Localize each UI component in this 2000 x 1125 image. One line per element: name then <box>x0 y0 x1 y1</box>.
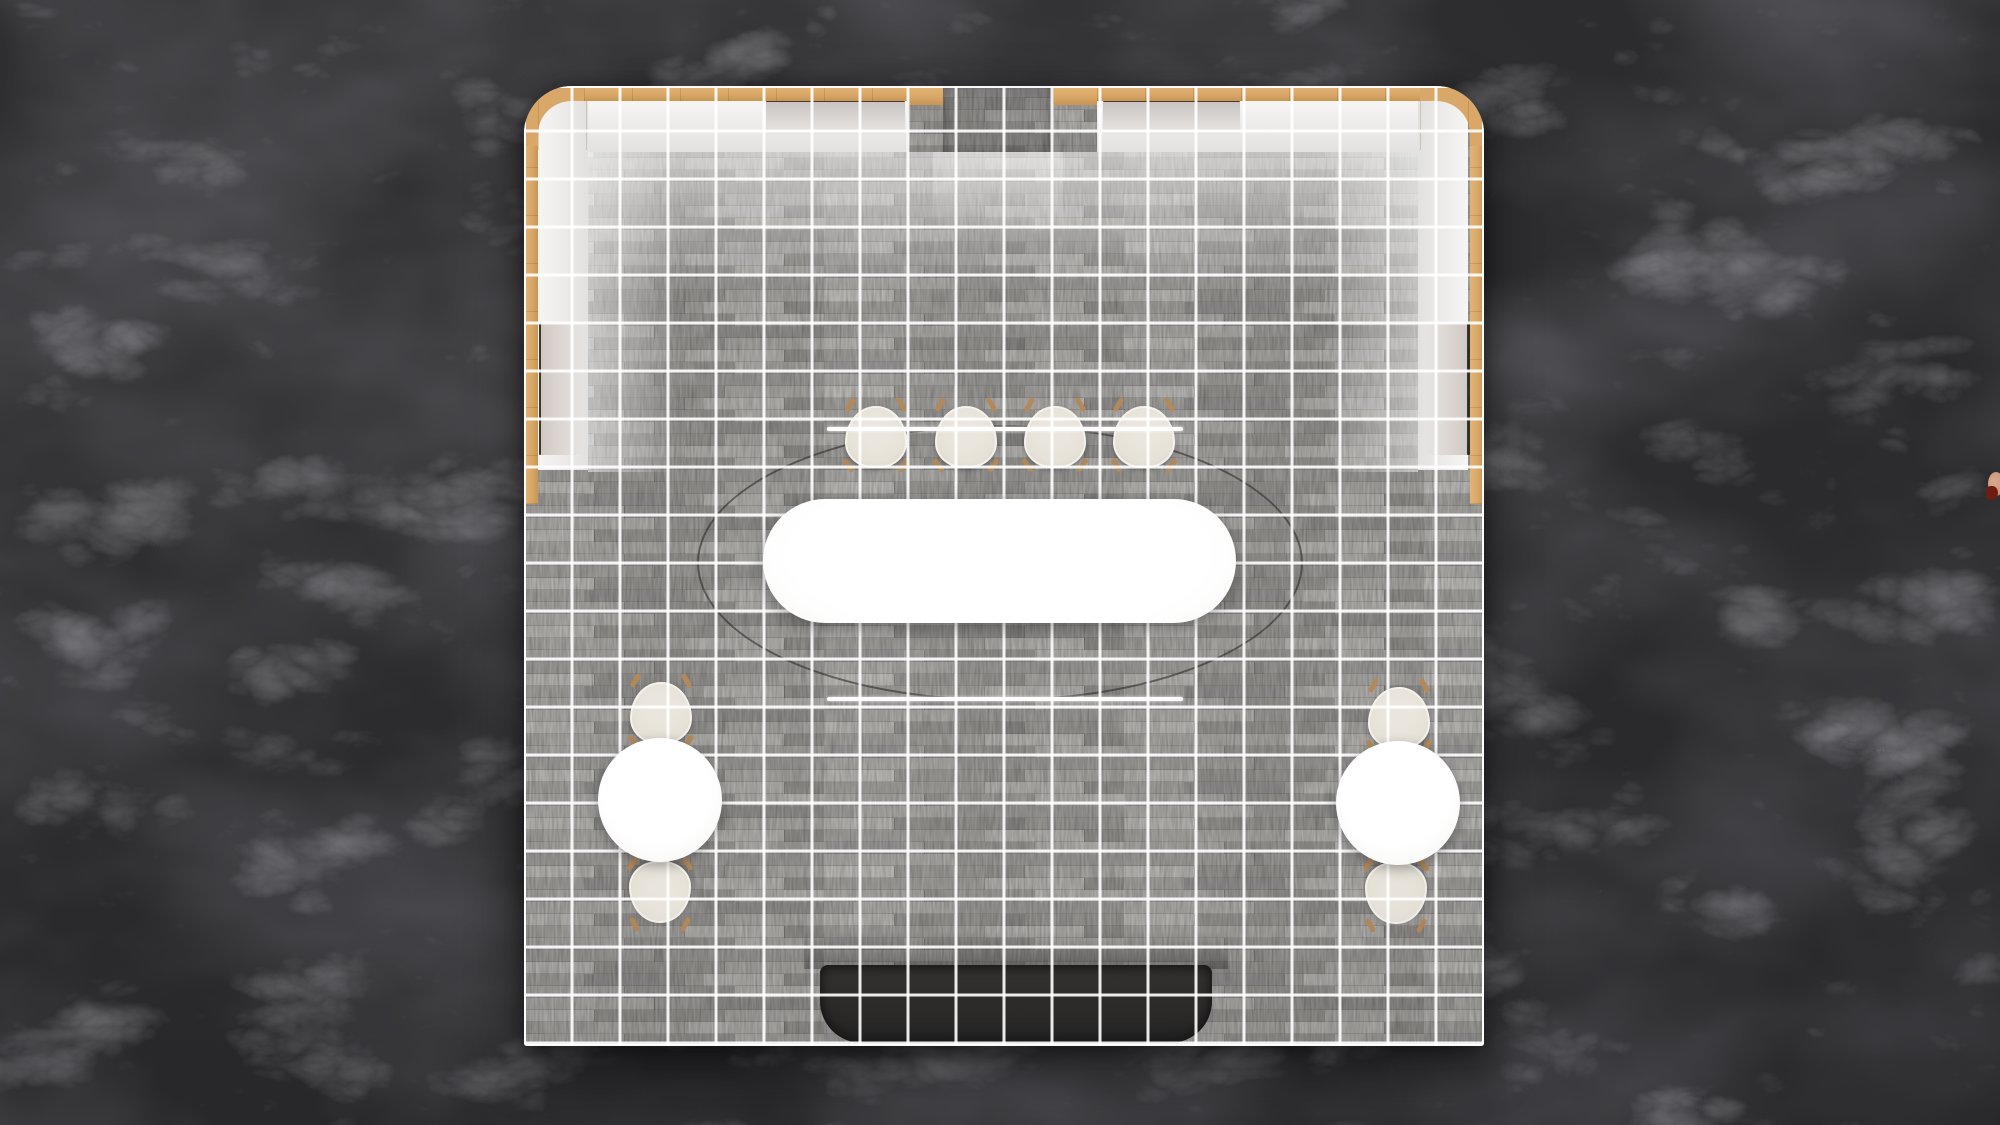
booth-floor-plan <box>524 86 1484 1046</box>
conference-table <box>763 499 1236 623</box>
table-layer <box>524 86 1484 1046</box>
render-canvas <box>0 0 2000 1125</box>
round-table <box>598 738 722 862</box>
round-table <box>1336 741 1460 865</box>
